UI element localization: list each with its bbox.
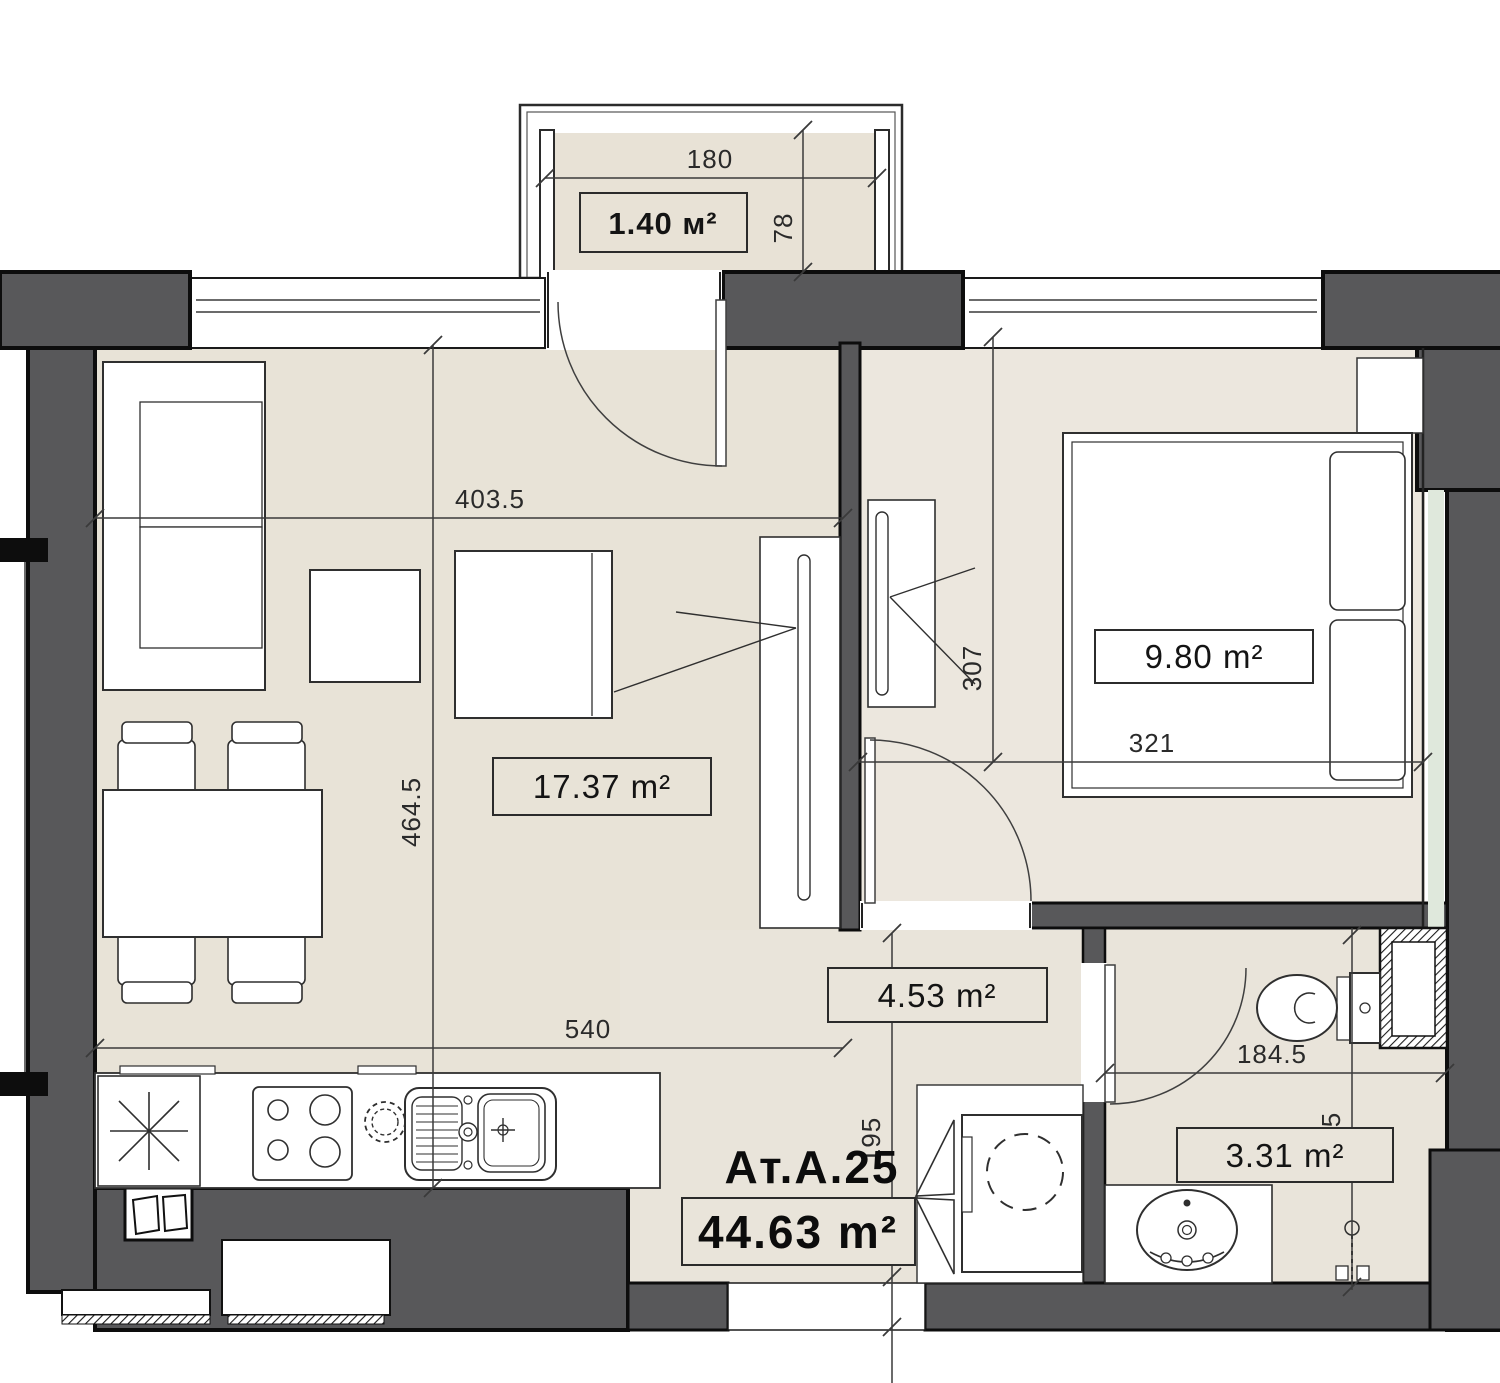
bin-square	[163, 1195, 187, 1231]
overflow-hole	[1182, 1256, 1192, 1266]
burner	[268, 1140, 288, 1160]
wall-bedroom-south	[1030, 903, 1447, 928]
side-table	[310, 570, 420, 682]
floor-plan-drawing: 180 78 403.5 464.5 540 321 307 195 184.5…	[0, 0, 1500, 1383]
overflow-hole	[1161, 1253, 1171, 1263]
burner	[310, 1095, 340, 1125]
bathroom-area-label: 3.31 m²	[1226, 1137, 1345, 1174]
wall-top-left	[0, 272, 190, 348]
burner	[310, 1137, 340, 1167]
bedroom-niche	[1357, 358, 1423, 433]
apartment-id-label: Ат.А.25	[724, 1141, 899, 1193]
dim-bedroom-depth: 307	[957, 645, 987, 691]
kitchen	[95, 1066, 660, 1188]
sink-drainer	[412, 1097, 462, 1170]
window-sill-hatch	[62, 1315, 210, 1324]
wall-partition-living-bedroom	[840, 343, 860, 930]
balcony-door-opening	[546, 270, 722, 350]
balcony-area-label: 1.40 м²	[608, 206, 717, 241]
dim-balcony-width: 180	[687, 144, 733, 174]
bathroom-sink	[1105, 1185, 1272, 1283]
shaft-inner	[1392, 942, 1435, 1036]
wall-right-pier	[1417, 348, 1500, 490]
sofa-cushion	[140, 402, 262, 527]
balcony-door-leaf	[716, 300, 726, 466]
neighbour-wall-stub	[0, 538, 48, 562]
counter-back-edge	[120, 1066, 215, 1074]
balcony-post-left	[540, 130, 554, 278]
sink-detail	[464, 1161, 472, 1169]
pillow	[1330, 620, 1405, 780]
washing-machine-panel	[962, 1137, 972, 1212]
sliding-door-panel	[798, 555, 810, 900]
balcony-post-right	[875, 130, 889, 278]
wall-corner-bottom-right	[1430, 1150, 1500, 1330]
bedroom-window	[963, 278, 1323, 348]
dim-bedroom-width: 321	[1129, 728, 1175, 758]
bedroom-door-opening	[860, 901, 1032, 930]
toilet-bowl	[1257, 975, 1337, 1041]
kitchen-sink	[405, 1088, 556, 1180]
chair-back	[232, 982, 302, 1003]
toilet-joint	[1337, 977, 1351, 1040]
window-bottom-a	[62, 1290, 210, 1315]
faucet-dot	[1184, 1200, 1190, 1206]
living-area-label: 17.37 m²	[533, 768, 671, 805]
wall-bottom-right	[925, 1283, 1447, 1330]
sofa-cushion	[140, 527, 262, 648]
burner	[268, 1100, 288, 1120]
bathroom-door-opening	[1081, 963, 1107, 1102]
dim-balcony-depth: 78	[768, 213, 798, 244]
bin-square	[133, 1196, 159, 1234]
toilet	[1257, 973, 1380, 1043]
shower-foot	[1357, 1266, 1369, 1280]
wall-left	[28, 348, 95, 1292]
insulation-strip	[1428, 490, 1444, 930]
total-area-label: 44.63 m²	[698, 1206, 898, 1258]
wall-top-right	[1323, 272, 1500, 348]
wall-bathroom-west	[1083, 1100, 1105, 1283]
bathroom-door-leaf	[1105, 965, 1115, 1102]
window-bottom-b	[222, 1240, 390, 1315]
chair-back	[122, 982, 192, 1003]
neighbour-wall-stub	[0, 1072, 48, 1096]
dim-bathroom-width: 184.5	[1237, 1039, 1307, 1069]
hall-fixtures	[916, 1085, 1083, 1283]
wall-top-middle	[723, 272, 963, 348]
coffee-table	[455, 551, 612, 718]
living-window	[190, 278, 545, 348]
counter-back-edge	[358, 1066, 416, 1074]
chair-back	[232, 722, 302, 743]
bedroom-area-label: 9.80 m²	[1145, 638, 1264, 675]
sink-basin-inner	[484, 1100, 539, 1166]
dim-living-full-width: 540	[565, 1014, 611, 1044]
washing-machine	[962, 1115, 1082, 1272]
dining-table	[103, 790, 322, 937]
floor-plan: 180 78 403.5 464.5 540 321 307 195 184.5…	[0, 0, 1500, 1383]
window-sill-hatch	[228, 1315, 384, 1324]
shower-foot	[1336, 1266, 1348, 1280]
overflow-hole	[1203, 1253, 1213, 1263]
sink-detail	[464, 1096, 472, 1104]
sliding-door-panel	[876, 512, 888, 695]
toilet-button	[1360, 1003, 1370, 1013]
wall-bottom-middle	[628, 1283, 728, 1330]
drain	[1183, 1226, 1192, 1235]
pillow	[1330, 452, 1405, 610]
fridge-star-icon	[110, 1092, 188, 1170]
sink-drain	[464, 1128, 472, 1136]
wall-bathroom-west-top	[1083, 928, 1105, 965]
dim-living-depth: 464.5	[396, 777, 426, 847]
dim-living-width: 403.5	[455, 484, 525, 514]
chair-back	[122, 722, 192, 743]
hall-area-label: 4.53 m²	[878, 977, 997, 1014]
